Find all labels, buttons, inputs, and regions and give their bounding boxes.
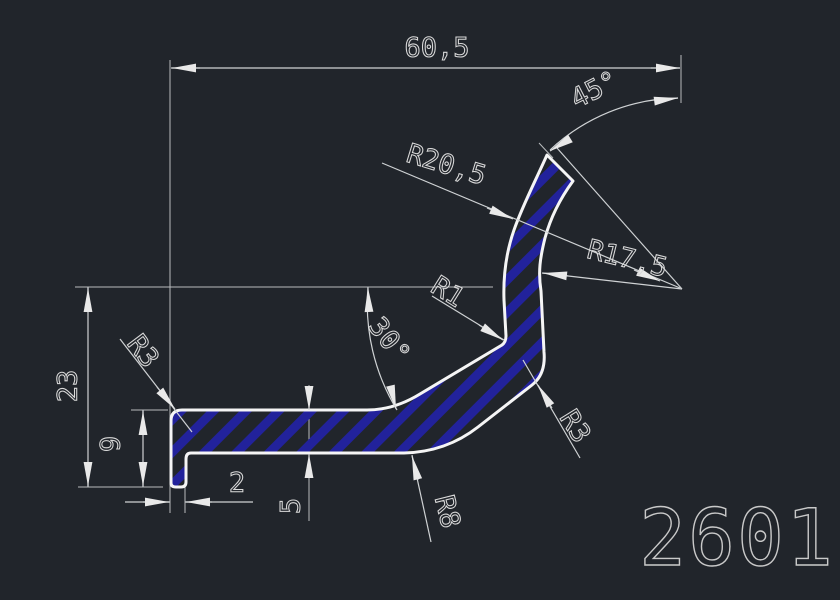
arrow-r17	[543, 273, 568, 276]
label-overall-height: 23	[53, 370, 84, 403]
dimension-labels: 60,5 45° R20,5 R17,5 R1 30° 23 R3 9 2 5 …	[53, 33, 671, 532]
label-outer-corner-radius: R3	[553, 404, 597, 448]
arrow-r1	[479, 325, 503, 340]
label-slope-angle: 30°	[362, 312, 416, 370]
label-top-left-radius: R3	[121, 329, 165, 374]
label-end-cut-angle: 45°	[566, 65, 624, 115]
arrow-r8	[412, 456, 418, 480]
label-bottom-bend-radius: R8	[428, 492, 466, 531]
label-inner-bend-radius: R17,5	[584, 234, 670, 284]
arrow-r3-left	[157, 387, 175, 409]
profile-cross-section	[171, 155, 573, 487]
arrow-r3-right	[538, 385, 552, 408]
label-outer-bend-radius: R20,5	[403, 138, 490, 191]
arrow-r20-arc	[487, 208, 513, 219]
part-number: 2601	[639, 494, 835, 584]
label-lip-height: 9	[96, 436, 127, 452]
arc-end-cut-angle	[550, 98, 678, 150]
label-lip-width: 2	[229, 468, 245, 499]
label-inner-corner-radius: R1	[426, 270, 470, 314]
arrow-30-upper	[368, 288, 369, 312]
cad-drawing-canvas[interactable]: 60,5 45° R20,5 R17,5 R1 30° 23 R3 9 2 5 …	[0, 0, 840, 600]
label-overall-width: 60,5	[404, 33, 469, 64]
profile-drawing: 60,5 45° R20,5 R17,5 R1 30° 23 R3 9 2 5 …	[0, 0, 840, 600]
label-wall-thickness: 5	[276, 498, 307, 514]
